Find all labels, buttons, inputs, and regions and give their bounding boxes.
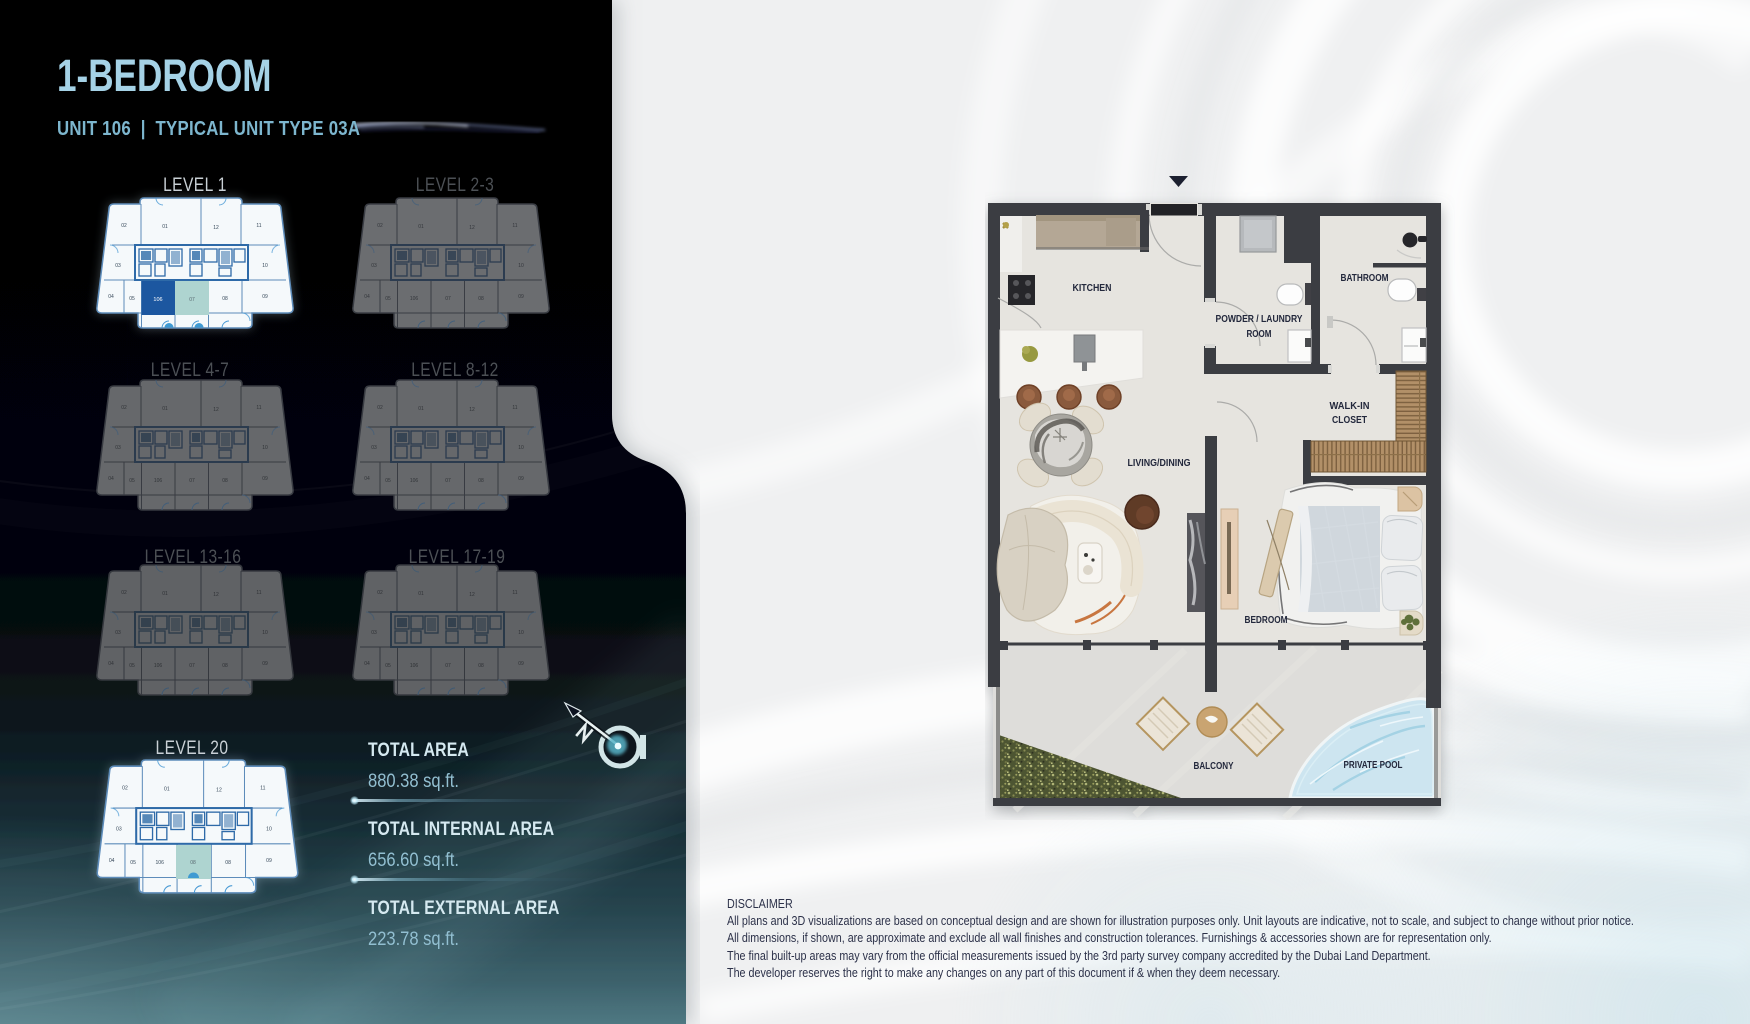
svg-text:CLOSET: CLOSET [1332, 415, 1367, 426]
svg-text:08: 08 [190, 860, 196, 866]
svg-text:BEDROOM: BEDROOM [1245, 615, 1288, 626]
svg-text:POWDER / LAUNDRY: POWDER / LAUNDRY [1216, 314, 1303, 325]
svg-text:BATHROOM: BATHROOM [1341, 273, 1389, 284]
svg-text:BALCONY: BALCONY [1194, 761, 1234, 772]
svg-text:07: 07 [189, 297, 195, 303]
svg-text:ROOM: ROOM [1247, 329, 1272, 340]
svg-text:PRIVATE POOL: PRIVATE POOL [1344, 760, 1403, 771]
svg-text:WALK-IN: WALK-IN [1330, 401, 1370, 412]
svg-text:106: 106 [153, 297, 162, 303]
svg-text:KITCHEN: KITCHEN [1073, 283, 1112, 294]
svg-text:LIVING/DINING: LIVING/DINING [1128, 458, 1191, 469]
